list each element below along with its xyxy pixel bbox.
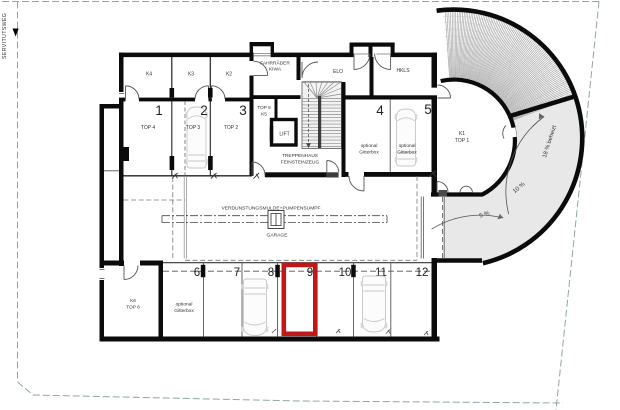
svg-text:FAHRRÄDER: FAHRRÄDER xyxy=(260,60,290,67)
svg-text:TOP 2: TOP 2 xyxy=(224,125,238,131)
svg-text:10: 10 xyxy=(339,267,352,279)
svg-text:K1: K1 xyxy=(459,131,465,137)
svg-text:K6: K6 xyxy=(130,298,136,304)
svg-text:FEINSTEINZEUG: FEINSTEINZEUG xyxy=(281,160,320,166)
svg-text:LIFT: LIFT xyxy=(279,132,289,138)
svg-text:optional: optional xyxy=(361,143,378,149)
svg-text:2: 2 xyxy=(200,103,208,118)
svg-text:optional: optional xyxy=(399,143,416,149)
svg-text:TOP 6: TOP 6 xyxy=(126,305,140,311)
svg-text:TREPPENHAUS: TREPPENHAUS xyxy=(282,153,318,159)
svg-text:4: 4 xyxy=(376,103,384,118)
svg-text:ELO: ELO xyxy=(333,69,343,75)
svg-text:9: 9 xyxy=(307,267,313,279)
svg-text:TOP 3: TOP 3 xyxy=(186,125,200,131)
svg-text:8: 8 xyxy=(268,267,274,279)
svg-text:KIWA: KIWA xyxy=(269,67,282,73)
svg-text:K3: K3 xyxy=(188,72,194,78)
svg-text:Gitterbox: Gitterbox xyxy=(174,308,194,314)
svg-text:TOP 5: TOP 5 xyxy=(257,105,271,111)
svg-text:6: 6 xyxy=(194,267,200,279)
svg-text:1: 1 xyxy=(155,103,163,118)
svg-text:TOP 1: TOP 1 xyxy=(455,138,469,144)
svg-text:TOP 4: TOP 4 xyxy=(141,125,155,131)
svg-text:optional: optional xyxy=(176,302,193,308)
svg-text:GARAGE: GARAGE xyxy=(267,233,289,239)
svg-text:12: 12 xyxy=(416,267,429,279)
svg-text:5: 5 xyxy=(424,102,432,117)
svg-text:Gitterbox: Gitterbox xyxy=(359,150,379,156)
svg-text:VERDUNSTUNGSMULDE+PUMPENSUMPF: VERDUNSTUNGSMULDE+PUMPENSUMPF xyxy=(221,206,320,212)
svg-text:K5: K5 xyxy=(261,112,267,118)
svg-text:Gitterbox: Gitterbox xyxy=(397,150,417,156)
svg-text:3: 3 xyxy=(239,103,247,118)
svg-text:K2: K2 xyxy=(226,72,232,78)
svg-text:SERVITUTSWEG: SERVITUTSWEG xyxy=(2,13,8,59)
svg-text:HKLS: HKLS xyxy=(396,68,410,74)
svg-text:7: 7 xyxy=(234,267,240,279)
svg-text:K4: K4 xyxy=(146,72,152,78)
